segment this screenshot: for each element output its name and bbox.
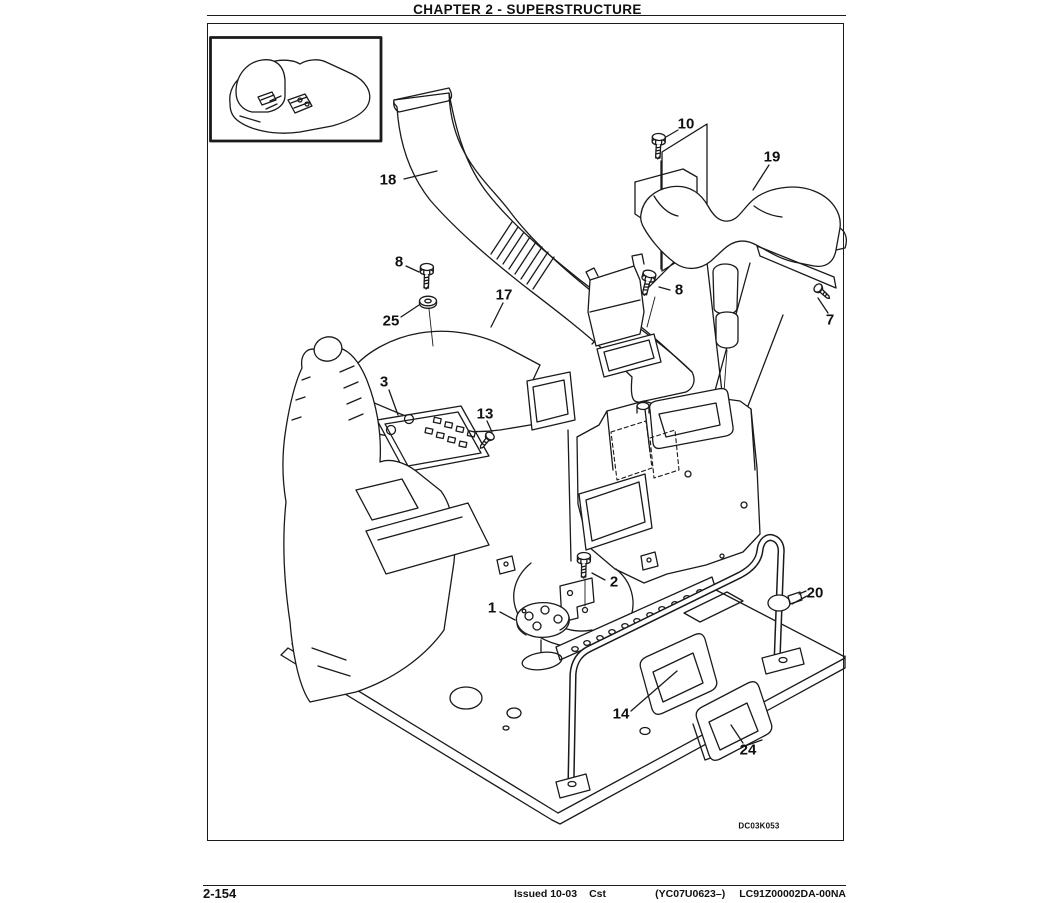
- callout-2: 2: [610, 574, 618, 591]
- callout-19: 19: [764, 149, 781, 166]
- callout-8-right: 8: [675, 282, 683, 299]
- callout-20: 20: [807, 585, 824, 602]
- manual-page: CHAPTER 2 - SUPERSTRUCTURE: [0, 0, 1055, 903]
- callout-24: 24: [740, 742, 757, 759]
- bolt-2-drawing: [577, 552, 590, 578]
- callout-7: 7: [826, 312, 834, 329]
- washer-25-drawing: [420, 296, 437, 308]
- page-number: 2-154: [203, 886, 236, 901]
- clamp-20-drawing: [768, 595, 790, 611]
- issued-cst: Cst: [589, 888, 606, 900]
- bolt-8-left-drawing: [420, 263, 434, 289]
- callout-8-left: 8: [395, 254, 403, 271]
- callout-18: 18: [380, 172, 397, 189]
- inset-location-thumbnail: [211, 38, 382, 142]
- callout-10: 10: [678, 116, 695, 133]
- callout-1: 1: [488, 600, 496, 617]
- grommet-1-drawing: [516, 603, 569, 673]
- bolt-10-drawing: [651, 133, 665, 159]
- hvac-unit-drawing: [577, 389, 760, 583]
- callout-25: 25: [383, 313, 400, 330]
- footer-doc-codes: (YC07U0623–)LC91Z00002DA-00NA: [655, 888, 846, 900]
- callout-17: 17: [496, 287, 513, 304]
- form-number: LC91Z00002DA-00NA: [739, 888, 846, 900]
- callout-13: 13: [477, 406, 494, 423]
- callout-3: 3: [380, 374, 388, 391]
- callout-14: 14: [613, 706, 630, 723]
- footer-issued: Issued 10-03Cst: [514, 888, 606, 900]
- exploded-diagram: [0, 0, 1055, 903]
- serial-range: (YC07U0623–): [655, 888, 725, 900]
- issued-date: Issued 10-03: [514, 888, 577, 900]
- figure-code: DC03K053: [738, 822, 779, 831]
- footer-rule: [203, 885, 846, 887]
- frame-14-drawing: [640, 634, 717, 715]
